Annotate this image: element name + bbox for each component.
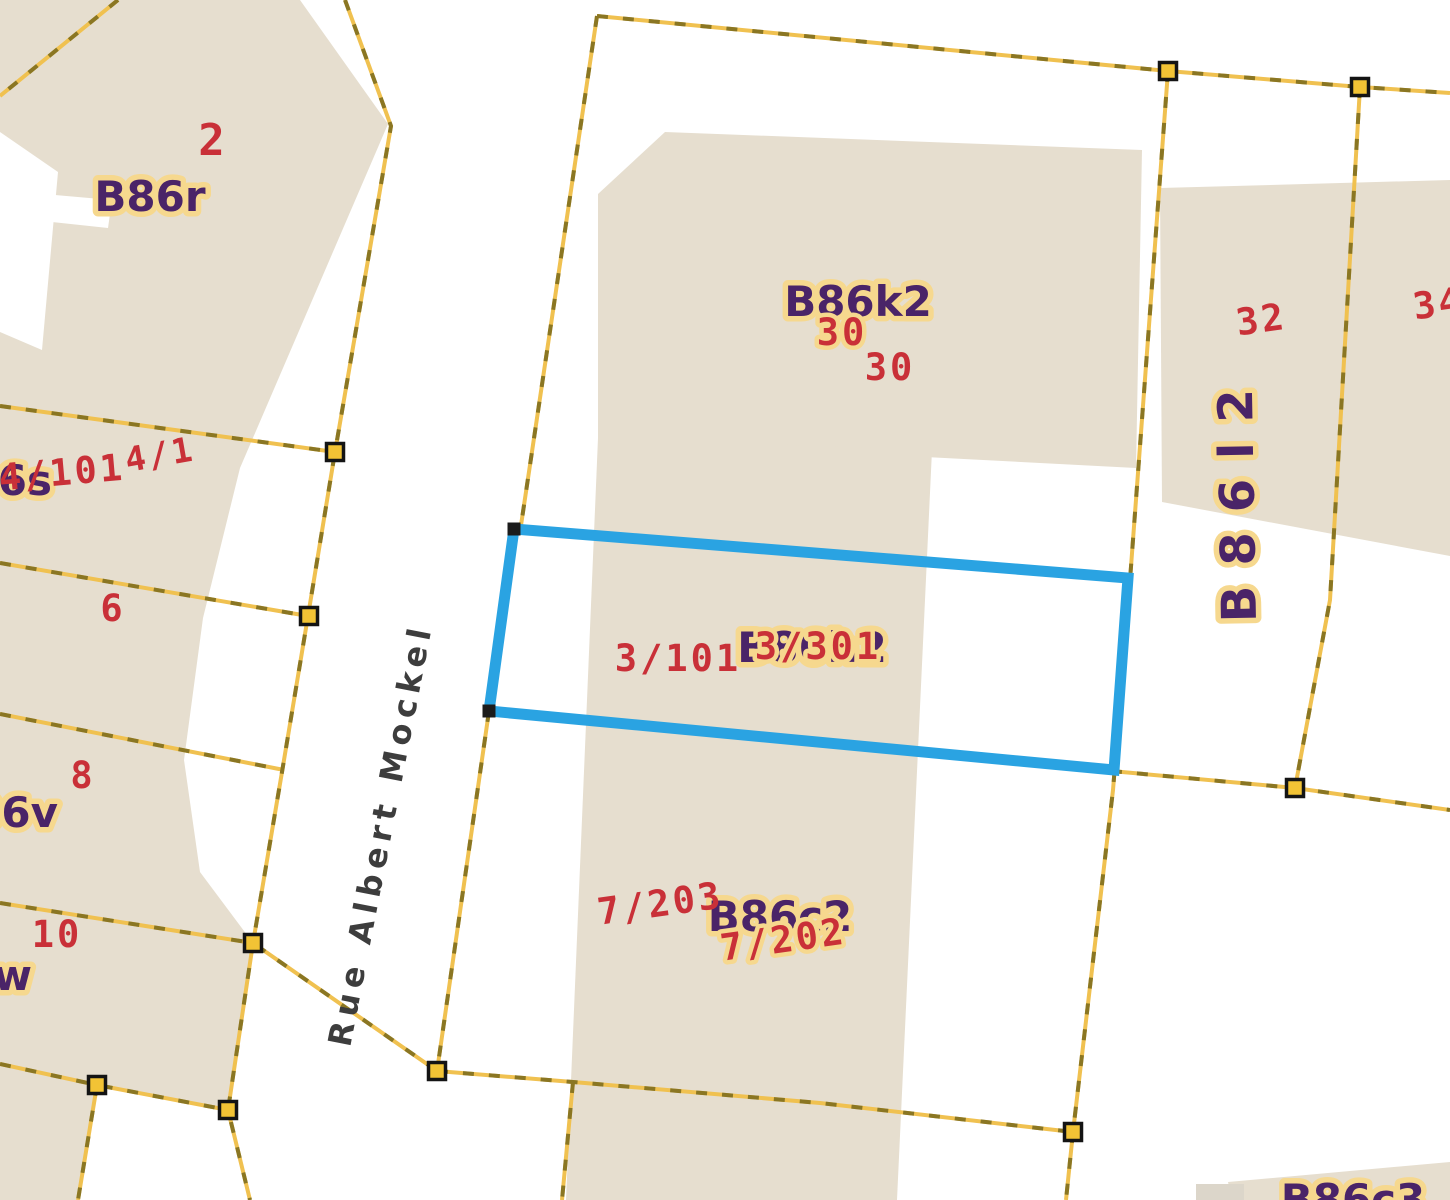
boundary-vertex [89, 1077, 106, 1094]
label-house-6: 6 [100, 587, 125, 630]
map-canvas[interactable]: Rue Albert Mockel B86r B86k2 B86l2 B86h2… [0, 0, 1450, 1200]
boundary-vertex [429, 1063, 446, 1080]
label-parcel-B86w-clipped: B86w [0, 951, 32, 1000]
label-house-2: 2 [198, 115, 228, 166]
boundary-vertex [327, 444, 344, 461]
label-house-30a: 30 [817, 311, 868, 354]
label-house-32: 32 [1233, 295, 1289, 345]
label-parcel-B86l2: B86l2 [1208, 369, 1268, 623]
boundary-vertex [301, 608, 318, 625]
boundary-vertex [1160, 63, 1177, 80]
label-house-8: 8 [70, 754, 95, 797]
boundary-vertex [1065, 1124, 1082, 1141]
label-parcel-B86r: B86r [94, 172, 205, 221]
label-house-34-clipped: 34 [1410, 279, 1450, 329]
label-house-10: 10 [32, 913, 83, 956]
label-parcelno-3-301: 3/301 [755, 625, 881, 668]
building-fragment [1196, 1184, 1244, 1200]
label-parcel-B86v-clipped: B86v [0, 788, 58, 837]
boundary-vertex [1352, 79, 1369, 96]
selected-parcel-vertex [508, 523, 521, 536]
selected-parcel-vertex [483, 705, 496, 718]
boundary-vertex [245, 935, 262, 952]
street-name-label: Rue Albert Mockel [321, 619, 440, 1049]
label-parcel-B86c3: B86c3 [1281, 1175, 1426, 1200]
building-right-block [1160, 180, 1450, 556]
label-parcelno-3-101: 3/101 [615, 637, 741, 680]
boundary-vertex [220, 1102, 237, 1119]
label-house-30b: 30 [865, 346, 916, 389]
boundary-vertex [1287, 780, 1304, 797]
